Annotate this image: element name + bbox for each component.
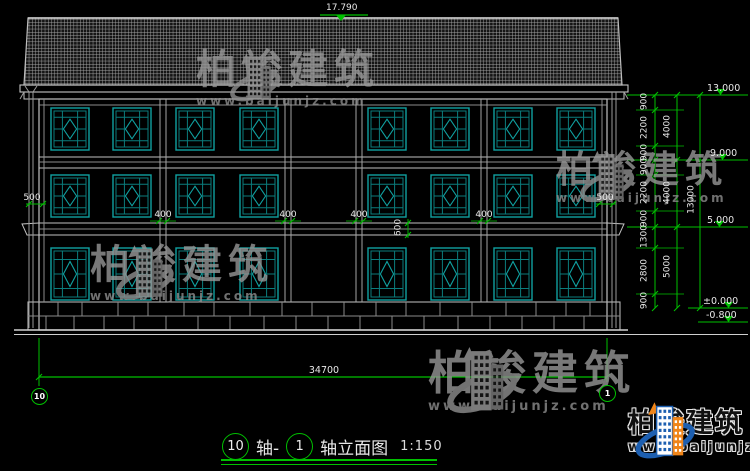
eave-overhang-label: 500 (594, 194, 616, 203)
axis-bubble-1: 1 (599, 385, 616, 402)
site-logo: 柏竣建筑 www.baijunjz.com (538, 398, 750, 466)
floor-segment-label: 1300 (641, 223, 650, 251)
beam-depth-label: 600 (395, 216, 404, 240)
floor-segment-label: 2200 (641, 114, 650, 142)
window (51, 175, 89, 217)
watermark-left: 柏竣建筑 www.baijunjz.com (24, 241, 274, 307)
level-elevation-label: 5.000 (707, 216, 734, 226)
ground-lines (14, 330, 748, 335)
title-separator: 轴- (256, 434, 279, 459)
window (240, 108, 278, 150)
level-elevation-label: -0.800 (706, 311, 737, 321)
window (431, 175, 469, 217)
window (368, 108, 406, 150)
floor-total-label: 4000 (664, 113, 673, 141)
window (494, 108, 532, 150)
window (51, 108, 89, 150)
title-suffix: 轴立面图 (320, 434, 388, 459)
overall-height-label: 13000 (688, 183, 697, 217)
window (240, 175, 278, 217)
level-elevation-label: 13.000 (707, 84, 740, 94)
window (176, 175, 214, 217)
eave-overhang-label: 500 (21, 194, 43, 203)
baijun-logo-icon (538, 398, 622, 466)
floor-segment-label: 900 (641, 153, 650, 181)
floor-segment-label: 2800 (641, 257, 650, 285)
window (368, 248, 406, 300)
title-axis-start-bubble: 10 (222, 433, 249, 460)
title-axis-end-bubble: 1 (286, 433, 313, 460)
level-elevation-label: 9.000 (710, 149, 737, 159)
window (431, 108, 469, 150)
floor-segment-label: 900 (641, 287, 650, 315)
floor-total-label: 5000 (664, 253, 673, 281)
window (557, 248, 595, 300)
window (176, 108, 214, 150)
window (368, 175, 406, 217)
window (431, 248, 469, 300)
floor-total-label: 4000 (664, 179, 673, 207)
column-width-label: 400 (278, 211, 298, 220)
overall-width-label: 34700 (300, 366, 348, 376)
ridge-elevation-label: 17.790 (326, 4, 358, 13)
floor-segment-label: 900 (641, 88, 650, 116)
baijun-logo-icon (494, 147, 548, 209)
cad-elevation-drawing: 柏竣建筑 www.baijunjz.com 柏竣建筑 www.baijunjz.… (0, 0, 750, 471)
window (113, 175, 151, 217)
floor-segment-label: 2200 (641, 179, 650, 207)
window (557, 108, 595, 150)
drawing-title: 10 轴- 1 轴立面图 1:150 (222, 433, 443, 460)
watermark-top: 柏竣建筑 www.baijunjz.com (138, 50, 380, 108)
baijun-logo-icon (24, 241, 82, 307)
column-width-label: 400 (153, 211, 173, 220)
axis-bubble-10: 10 (31, 388, 48, 405)
title-underline (221, 459, 437, 465)
window (113, 108, 151, 150)
column-width-label: 400 (474, 211, 494, 220)
window (494, 248, 532, 300)
level-elevation-label: ±0.000 (703, 297, 738, 307)
title-scale: 1:150 (400, 439, 442, 454)
baijun-logo-icon (138, 51, 188, 107)
baijun-logo-icon (338, 342, 420, 422)
column-width-label: 400 (349, 211, 369, 220)
